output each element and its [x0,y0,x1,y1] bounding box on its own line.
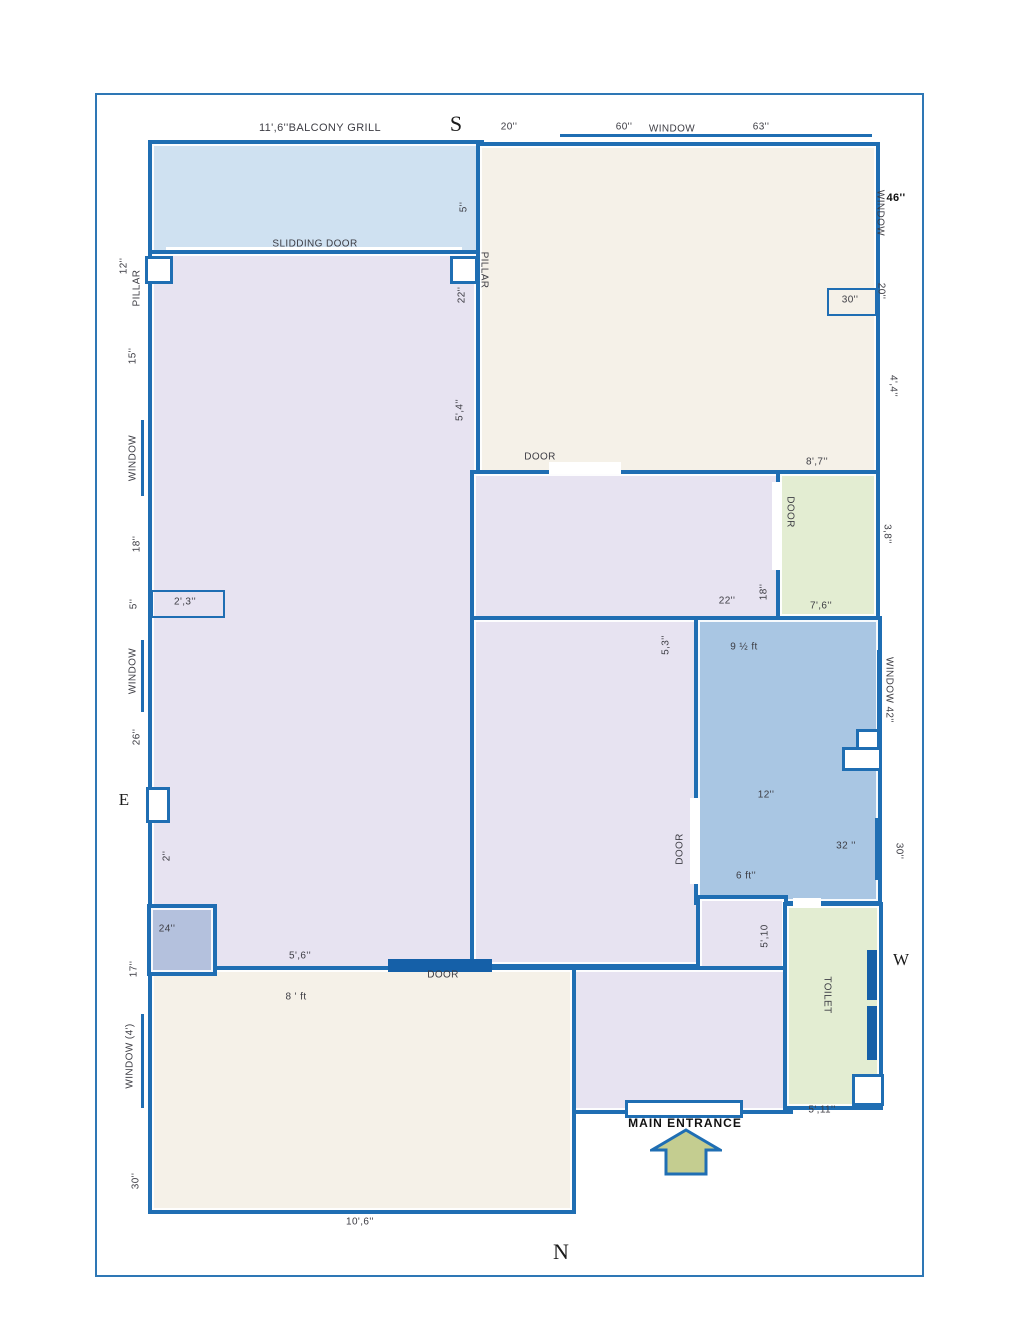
dim-7-6: 7',6'' [810,601,832,612]
dim-left-30: 30'' [131,1173,142,1190]
dim-left-5: 5'' [129,599,140,610]
dim-3-8: 3,8'' [882,524,893,544]
door-gap-blue-room [690,798,700,884]
room-green-door [776,470,880,620]
dim-right-20: 20'' [876,283,887,300]
dim-5-10: 5',10 [760,924,771,947]
door-center-label: DOOR [675,833,686,865]
dim-5-11: 5',11'' [808,1105,835,1116]
door-mid-label: DOOR [524,452,556,463]
window-42-label: WINDOW 42'' [884,657,895,723]
dim-5-3: 5,3'' [661,635,672,655]
dim-right-46: 46'' [886,192,905,204]
window-line-left-1 [141,420,144,496]
dim-balcony-5: 5'' [459,202,470,213]
dim-8-7: 8',7'' [806,457,828,468]
window-top-label: WINDOW [649,124,695,135]
window-4ft-label: WINDOW (4') [125,1023,136,1088]
room-top-right [476,142,880,480]
dim-9half-ft: 9 ½ ft [730,642,757,653]
floor-plan: S E W N 11',6''BALCONY GRILL 20'' 60'' W… [0,0,1020,1320]
window-right-label: WINDOW [875,190,886,236]
dim-top-60: 60'' [616,122,633,133]
dim-6ft: 6 ft'' [736,871,756,882]
wall-notch-lower [842,747,882,771]
room-bottom-left [148,966,576,1214]
pillar-left-square [145,256,173,284]
dim-10-6: 10',6'' [346,1217,374,1228]
dim-8ft: 8 ' ft [286,992,307,1003]
dim-blue-32: 32 '' [836,841,856,852]
compass-east: E [119,790,129,810]
room-small-square [147,904,217,976]
door-gap-toilet [793,898,821,908]
dim-left-18: 18'' [132,536,143,553]
pillar-left-label: PILLAR [132,270,143,307]
window-line-left-2 [141,640,144,712]
room-middle [470,470,788,626]
sliding-door-label: SLIDDING DOOR [272,239,357,250]
toilet-label: TOILET [822,976,833,1013]
dim-right-30: 30'' [894,843,905,860]
dim-left-2: 2'' [162,851,173,862]
room-bottom-center [563,966,793,1114]
dim-pillar-22: 22'' [457,287,468,304]
door-gap-top-right-room [549,462,621,474]
balcony-grill-label: 11',6''BALCONY GRILL [259,122,381,134]
window-line-top [560,134,872,137]
dim-2-3: 2',3'' [174,597,196,608]
dim-5-4: 5',4'' [455,399,466,421]
window-left-2-label: WINDOW [128,648,139,694]
main-entrance-label: MAIN ENTRANCE [628,1116,742,1130]
door-gap-green-room [772,482,782,570]
compass-west: W [893,950,909,970]
dim-left-17: 17'' [129,961,140,978]
room-center-tall [470,616,706,968]
dim-left-15: 15'' [128,348,139,365]
window-line-42 [877,650,880,750]
compass-south: S [450,111,462,137]
main-entrance-arrow [650,1128,722,1176]
dim-top-63: 63'' [753,122,770,133]
toilet-corner-box [852,1074,884,1106]
window-left-1-label: WINDOW [128,435,139,481]
toilet-window-upper [867,950,877,1000]
dim-4-4: 4',4'' [888,375,899,397]
dim-30-box: 30'' [842,295,859,306]
pillar-right-label: PILLAR [479,252,490,289]
door-green-label: DOOR [785,496,796,528]
window-line-left-3 [141,1014,144,1108]
compass-north: N [553,1239,569,1265]
dim-mid-22: 22'' [719,596,736,607]
window-line-30 [875,818,878,880]
toilet-window-lower [867,1006,877,1060]
dim-left-12: 12'' [119,258,130,275]
door-bottom-label: DOOR [427,970,459,981]
dim-blue-12: 12'' [758,790,775,801]
dim-top-20: 20'' [501,122,518,133]
dim-left-26: 26'' [132,729,143,746]
dim-5-6: 5',6'' [289,951,311,962]
dim-24: 24'' [159,924,176,935]
wall-protrusion-east [146,787,170,823]
dim-mid-18: 18'' [759,584,770,601]
pillar-right-square [450,256,478,284]
